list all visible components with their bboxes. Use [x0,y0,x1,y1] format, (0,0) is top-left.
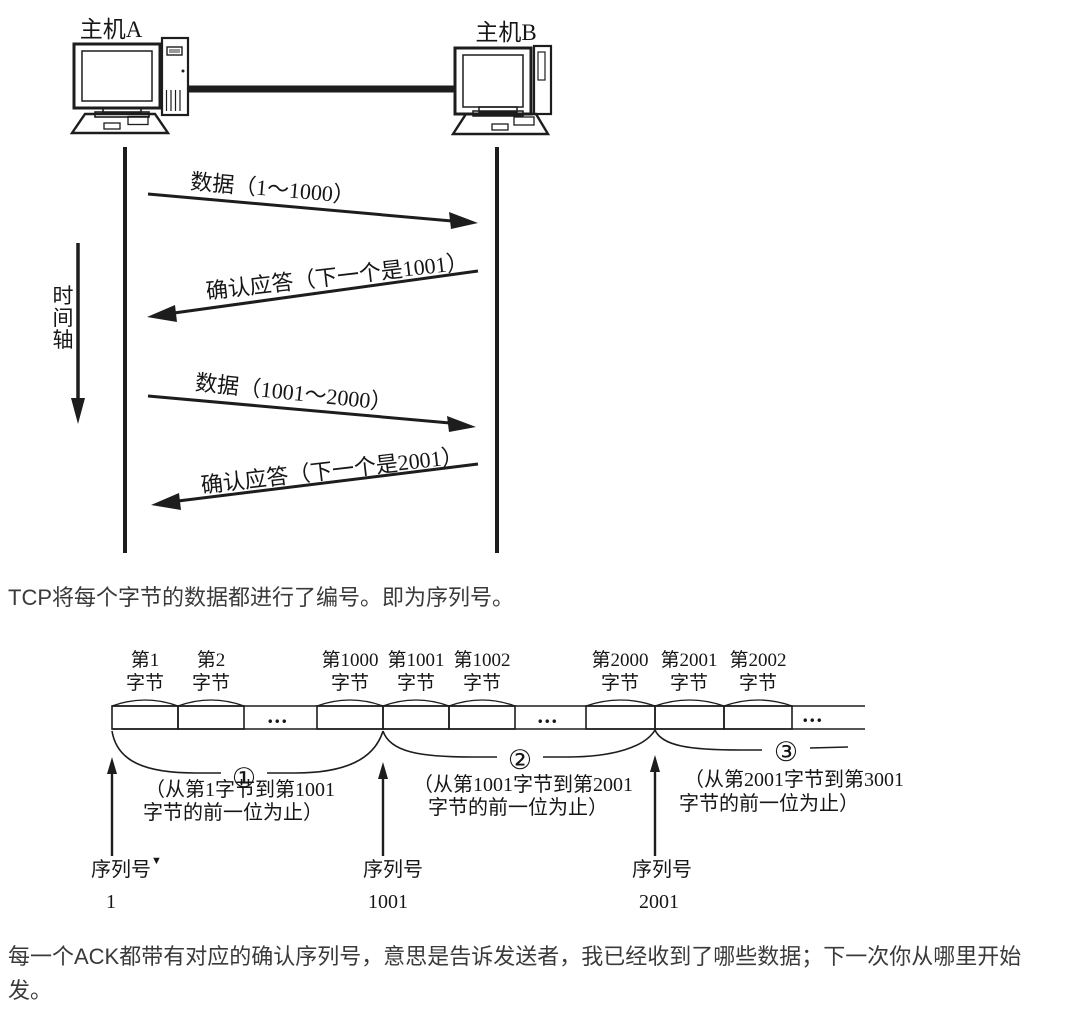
byte-label-num: 第2 [197,649,226,671]
message-arrow-ack-2: 确认应答（下一个是2001） [151,443,478,510]
byte-cell [317,706,383,729]
byte-label-unit: 字节 [670,672,708,694]
section-brace-2: ② （从第1001字节到第2001 字节的前一位为止） [383,730,655,819]
host-a-computer-icon [72,38,188,133]
byte-label-num: 第2002 [729,649,786,671]
host-a-label: 主机A [80,17,143,42]
byte-numbering-diagram: 第1 字节 第2 字节 第1000 字节 第1001 字节 第1002 字节 第… [0,620,1077,930]
seq-pointer-3: 序列号 2001 [632,755,692,913]
byte-strip: ... ... ... [112,700,865,729]
message-label-ack-1: 确认应答（下一个是1001） [205,249,470,304]
time-axis-char-1: 时 [53,284,74,308]
seq-value-3: 2001 [639,891,679,913]
seq-value-2: 1001 [368,891,408,913]
message-arrow-data-1: 数据（1～1000） [148,169,478,229]
byte-cell [449,706,515,729]
time-axis-char-3: 轴 [53,328,74,352]
time-axis: 时 间 轴 [53,243,86,424]
message-arrow-ack-1: 确认应答（下一个是1001） [147,249,478,322]
byte-label-unit: 字节 [331,672,369,694]
section-2-note-line1: （从第1001字节到第2001 [413,773,633,796]
section-2-note-line2: 字节的前一位为止） [428,796,608,819]
seq-label-1: 序列号 [91,858,151,881]
byte-label-num: 第1 [131,649,160,671]
byte-label-num: 第1001 [387,649,444,671]
seq-label-1-marker: ▼ [151,855,162,867]
notes-page: 主机A 主机B 时 间 轴 数据（1～1000） [0,0,1077,1013]
up-arrowhead [650,755,660,772]
arrowhead-right [449,212,478,229]
byte-label-unit: 字节 [126,672,164,694]
section-brace-3: ③ （从第2001字节到第3001 字节的前一位为止） [655,730,904,815]
arrowhead-left [147,305,177,322]
message-label-ack-2: 确认应答（下一个是2001） [200,443,465,498]
circled-number-2: ② [508,745,532,775]
section-brace-1: ① （从第1字节到第1001 字节的前一位为止） [112,731,383,824]
seq-label-2: 序列号 [363,858,423,881]
byte-label-num: 第2000 [591,649,648,671]
arrowhead-left [151,493,181,510]
section-1-note-line1: （从第1字节到第1001 [145,778,335,801]
up-arrowhead [107,757,117,774]
byte-label-num: 第1000 [321,649,378,671]
byte-labels: 第1 字节 第2 字节 第1000 字节 第1001 字节 第1002 字节 第… [126,649,787,694]
paragraph-sequence-number: TCP将每个字节的数据都进行了编号。即为序列号。 [8,581,1056,615]
ellipsis: ... [538,703,559,728]
byte-label-unit: 字节 [397,672,435,694]
byte-cell [724,706,792,729]
byte-label-num: 第1002 [453,649,510,671]
seq-label-3: 序列号 [632,858,692,881]
byte-cell [178,706,244,729]
byte-label-unit: 字节 [192,672,230,694]
ellipsis: ... [803,702,824,727]
message-label-data-1: 数据（1～1000） [189,169,356,208]
section-1-note-line2: 字节的前一位为止） [143,801,323,824]
host-b-computer-icon [453,46,551,134]
paragraph-ack-explanation: 每一个ACK都带有对应的确认序列号，意思是告诉发送者，我已经收到了哪些数据；下一… [8,940,1056,1008]
time-axis-arrowhead [71,398,85,424]
byte-cell [586,706,655,729]
ellipsis: ... [268,703,289,728]
byte-cell [112,706,178,729]
byte-label-unit: 字节 [739,672,777,694]
byte-label-num: 第2001 [660,649,717,671]
message-arrow-data-2: 数据（1001～2000） [148,370,476,432]
host-b-label: 主机B [475,20,536,45]
time-axis-char-2: 间 [53,306,74,330]
byte-cell-arcs [112,700,792,706]
arrowhead-right [447,416,476,432]
byte-label-unit: 字节 [601,672,639,694]
byte-label-unit: 字节 [463,672,501,694]
byte-cell [383,706,449,729]
byte-cell [655,706,724,729]
tcp-sequence-diagram: 主机A 主机B 时 间 轴 数据（1～1000） [0,0,1077,570]
circled-number-3: ③ [774,737,798,767]
section-3-note-line2: 字节的前一位为止） [679,792,859,815]
up-arrowhead [378,762,388,779]
seq-value-1: 1 [106,891,116,913]
section-3-note-line1: （从第2001字节到第3001 [684,768,904,791]
